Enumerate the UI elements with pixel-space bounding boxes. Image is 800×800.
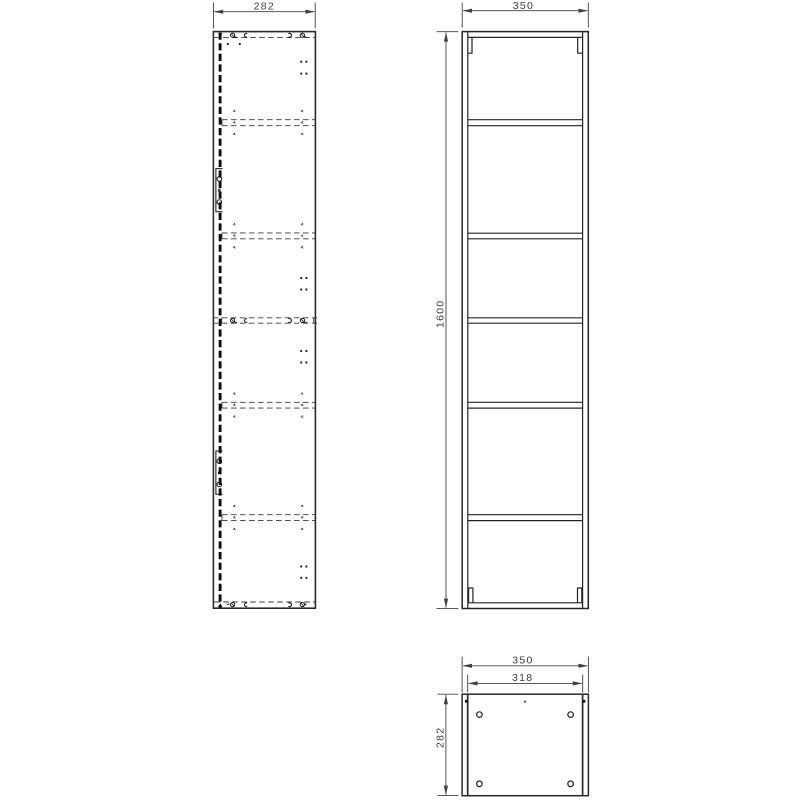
svg-text:282: 282 bbox=[254, 1, 275, 13]
svg-text:350: 350 bbox=[513, 0, 534, 12]
svg-text:282: 282 bbox=[434, 727, 446, 748]
svg-text:318: 318 bbox=[512, 672, 533, 684]
svg-text:1600: 1600 bbox=[435, 299, 447, 328]
svg-text:350: 350 bbox=[512, 654, 533, 666]
